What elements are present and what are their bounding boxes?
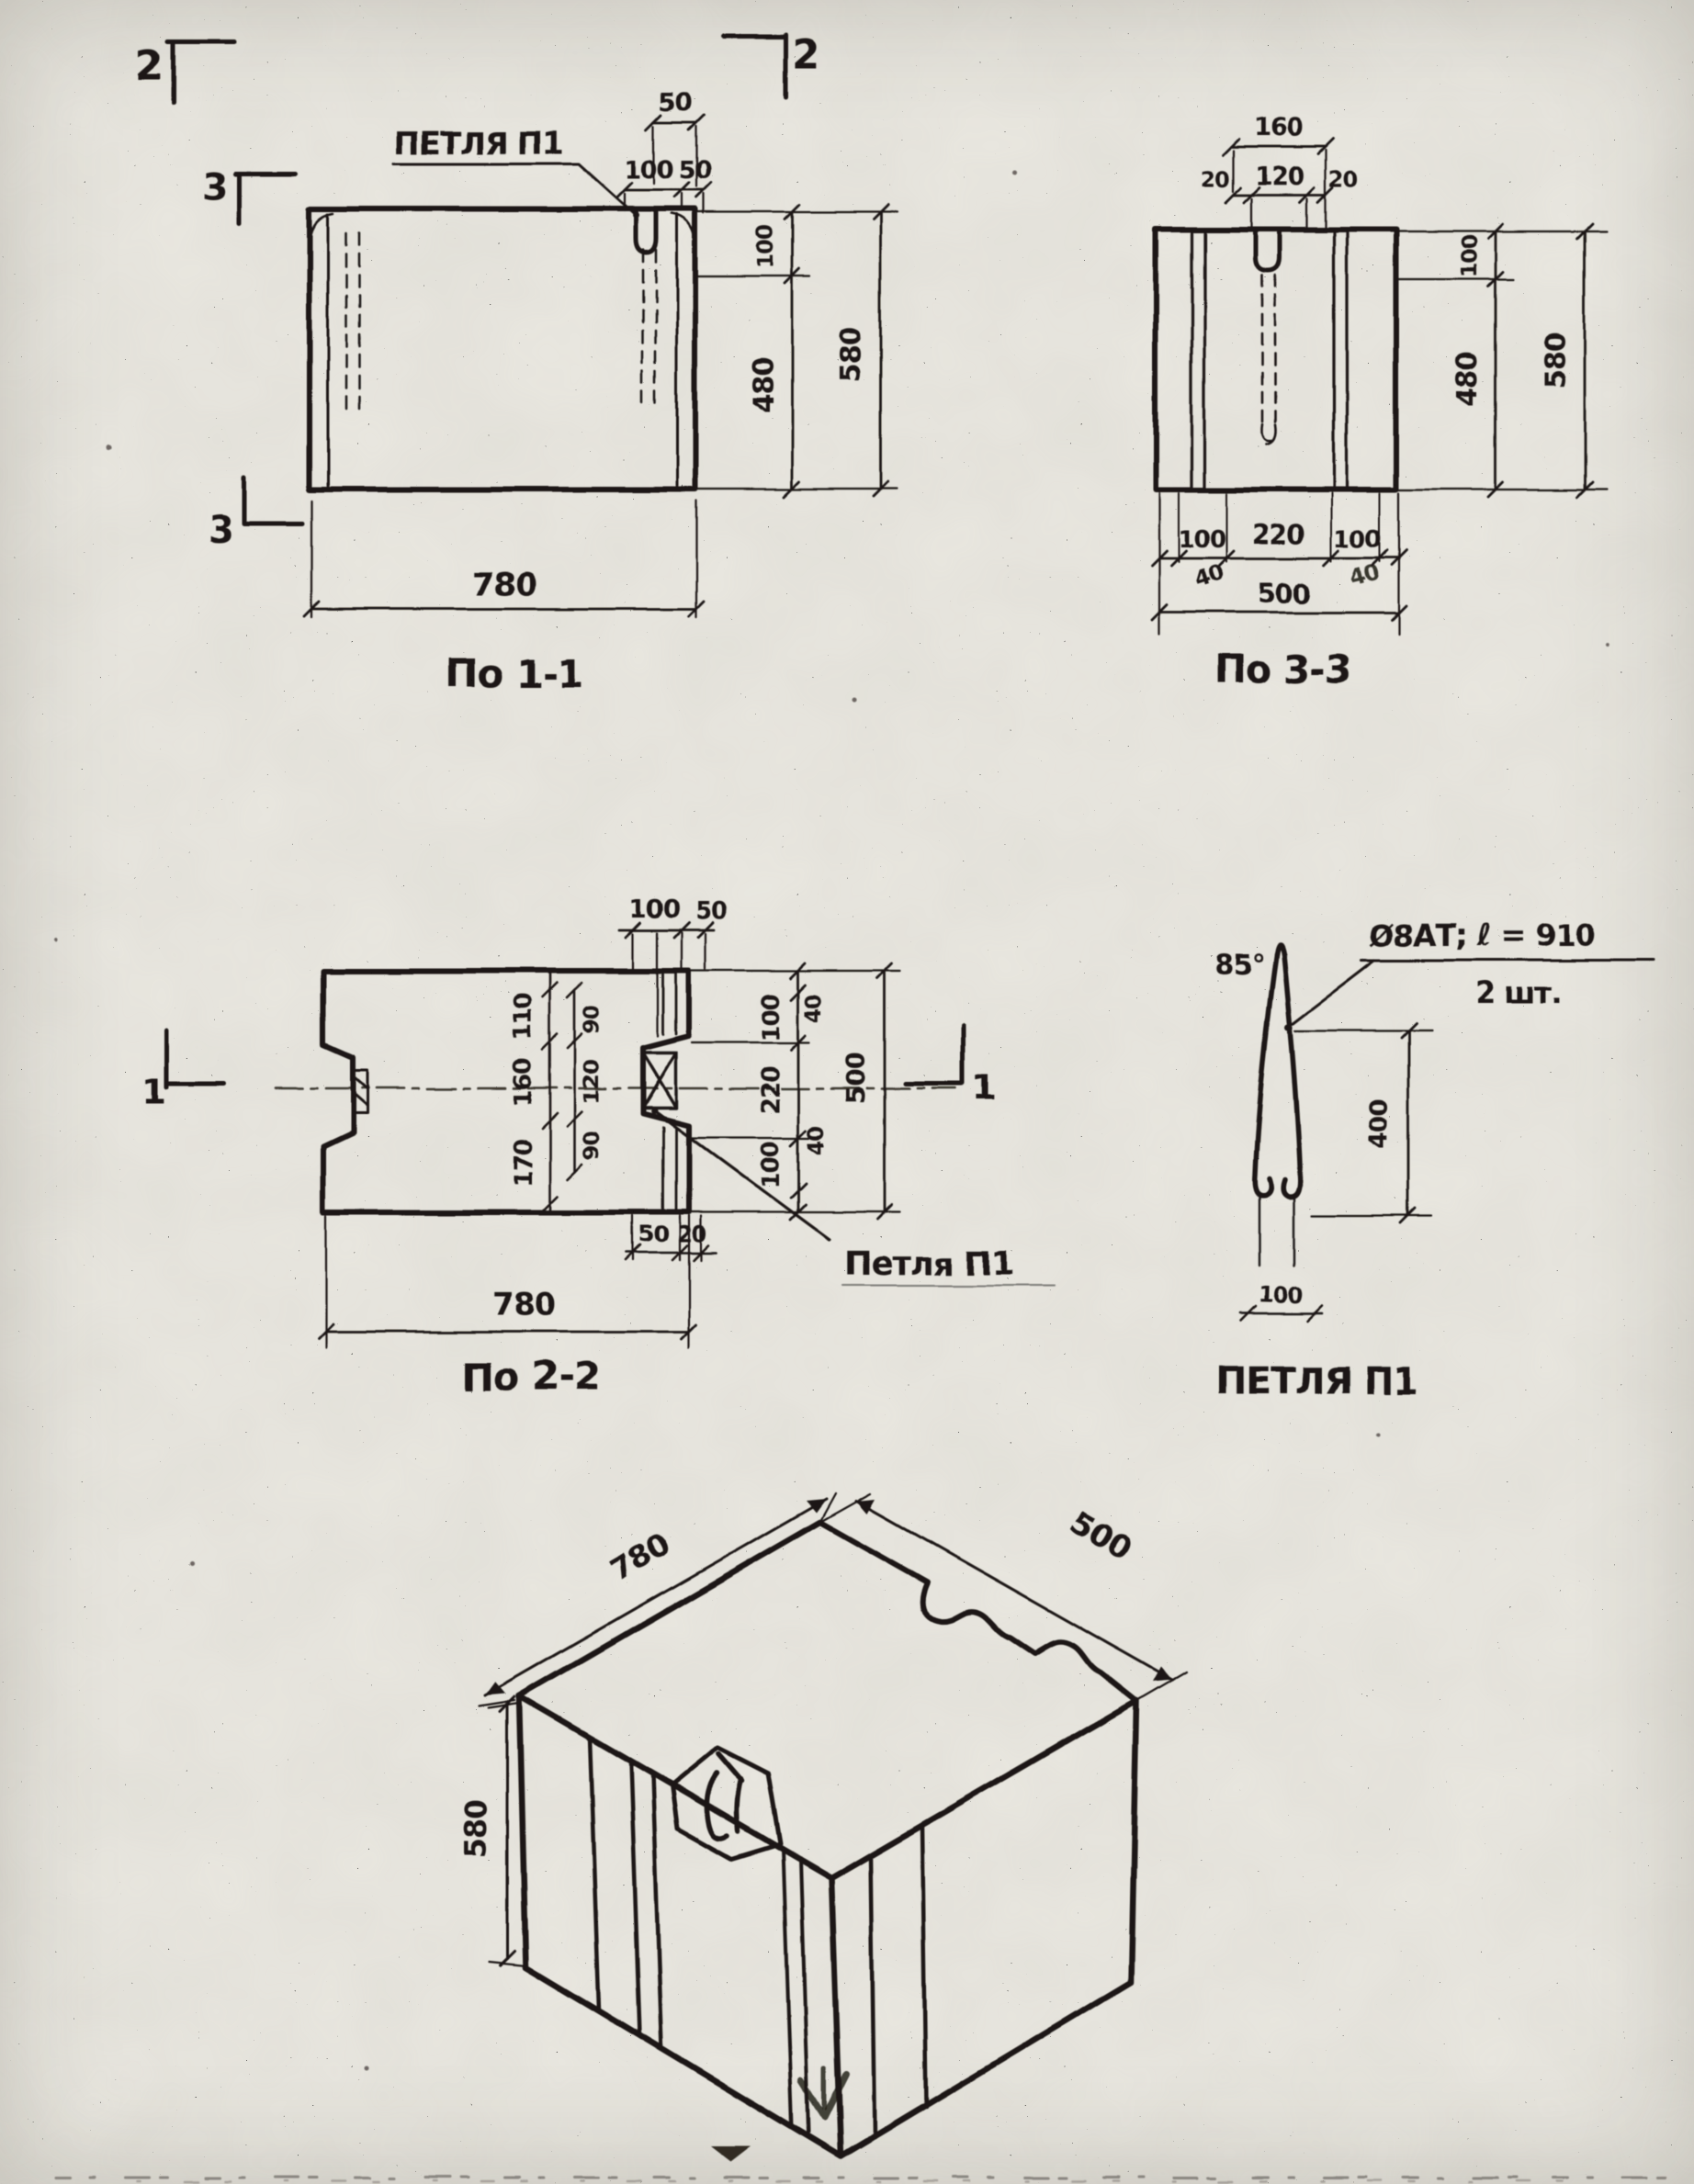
scanned-blueprint-page: 2 2 3 3 1 1 ПЕТЛЯ П1 50 100 (0, 0, 1694, 2184)
blueprint-sheet: 2 2 3 3 1 1 ПЕТЛЯ П1 50 100 (0, 0, 1694, 2184)
scan-noise-overlay (0, 0, 1694, 2184)
